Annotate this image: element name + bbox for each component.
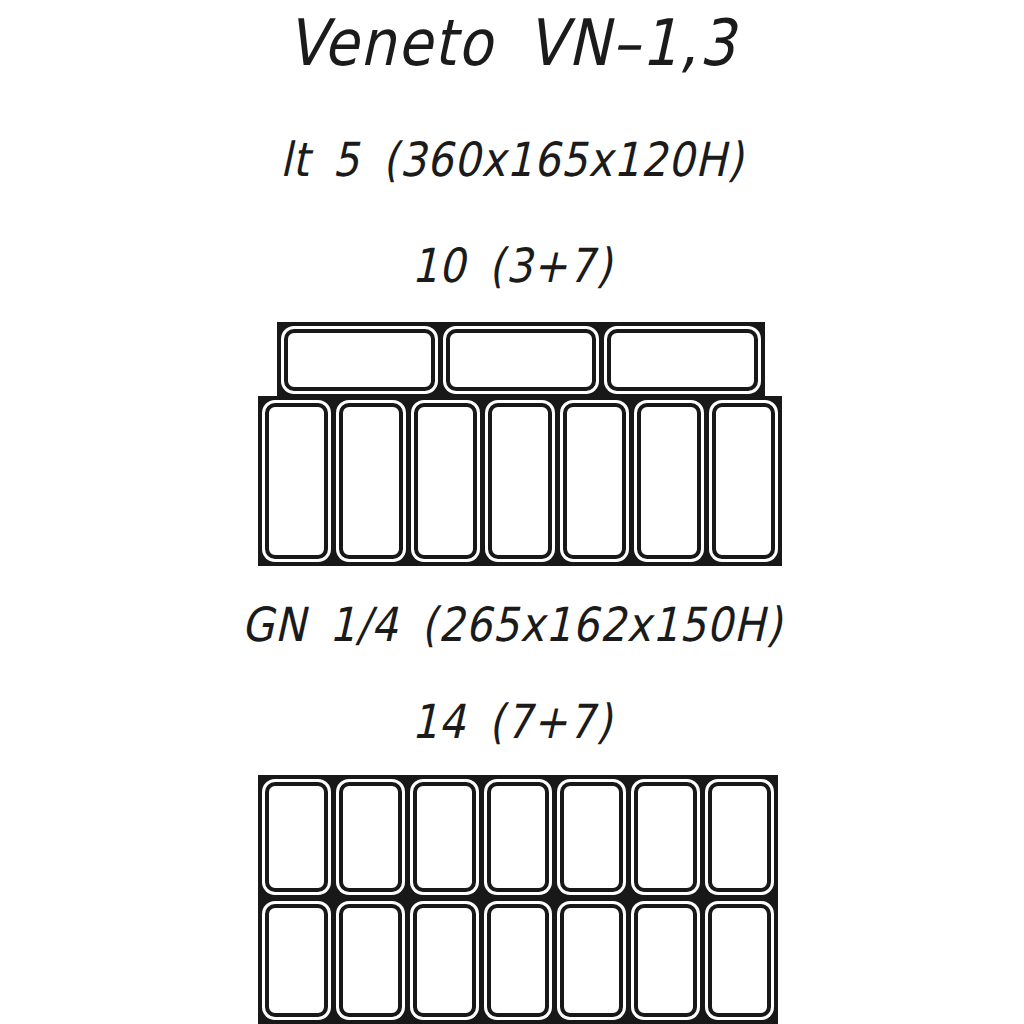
gastronorm-pan (709, 400, 778, 562)
pan-rim (634, 782, 697, 892)
gastronorm-pan (631, 779, 700, 895)
pan-rim (607, 329, 758, 391)
pan-rim (339, 904, 402, 1017)
pan-rim (634, 904, 697, 1017)
pan-rim (446, 329, 597, 391)
section1-pan-row-top (277, 322, 765, 398)
gastronorm-pan (411, 400, 480, 562)
section1-pan-row-bottom (258, 396, 782, 566)
gastronorm-pan (557, 779, 626, 895)
section2-pan-row-top (258, 775, 778, 899)
product-title: Veneto VN–1,3 (61, 6, 962, 80)
pan-rim (414, 403, 477, 559)
pan-rim (265, 782, 328, 892)
gastronorm-pan (604, 326, 761, 394)
gastronorm-pan (705, 901, 774, 1020)
gastronorm-pan (336, 901, 405, 1020)
pan-rim (560, 782, 623, 892)
pan-rim (284, 329, 435, 391)
gastronorm-pan (705, 779, 774, 895)
section2-pan-row-bottom (258, 897, 778, 1024)
pan-rim (563, 403, 626, 559)
pan-rim (637, 403, 700, 559)
pan-rim (487, 782, 550, 892)
pan-rim (413, 904, 476, 1017)
pan-rim (708, 782, 771, 892)
section1-pan-count-label: 10 (3+7) (61, 238, 962, 293)
gastronorm-pan (262, 901, 331, 1020)
gastronorm-pan (262, 779, 331, 895)
section2-pan-count-label: 14 (7+7) (61, 694, 962, 749)
gastronorm-pan (410, 901, 479, 1020)
pan-rim (413, 782, 476, 892)
gastronorm-pan (336, 400, 405, 562)
pan-rim (487, 904, 550, 1017)
gastronorm-pan (484, 779, 553, 895)
gastronorm-pan (336, 779, 405, 895)
gastronorm-pan (631, 901, 700, 1020)
gastronorm-pan (262, 400, 331, 562)
section2-pan-spec-label: GN 1/4 (265x162x150H) (61, 597, 962, 652)
pan-rim (488, 403, 551, 559)
section1-pan-spec-label: lt 5 (360x165x120H) (61, 132, 962, 187)
pan-rim (708, 904, 771, 1017)
gastronorm-pan (484, 901, 553, 1020)
gastronorm-pan (634, 400, 703, 562)
pan-rim (712, 403, 775, 559)
pan-rim (339, 782, 402, 892)
pan-rim (339, 403, 402, 559)
gastronorm-pan (485, 400, 554, 562)
pan-rim (265, 403, 328, 559)
gastronorm-pan (560, 400, 629, 562)
gastronorm-pan (281, 326, 438, 394)
gastronorm-pan (410, 779, 479, 895)
pan-rim (265, 904, 328, 1017)
gastronorm-pan (557, 901, 626, 1020)
technical-drawing-canvas: Veneto VN–1,3 lt 5 (360x165x120H) 10 (3+… (0, 0, 1024, 1024)
pan-rim (560, 904, 623, 1017)
gastronorm-pan (443, 326, 600, 394)
